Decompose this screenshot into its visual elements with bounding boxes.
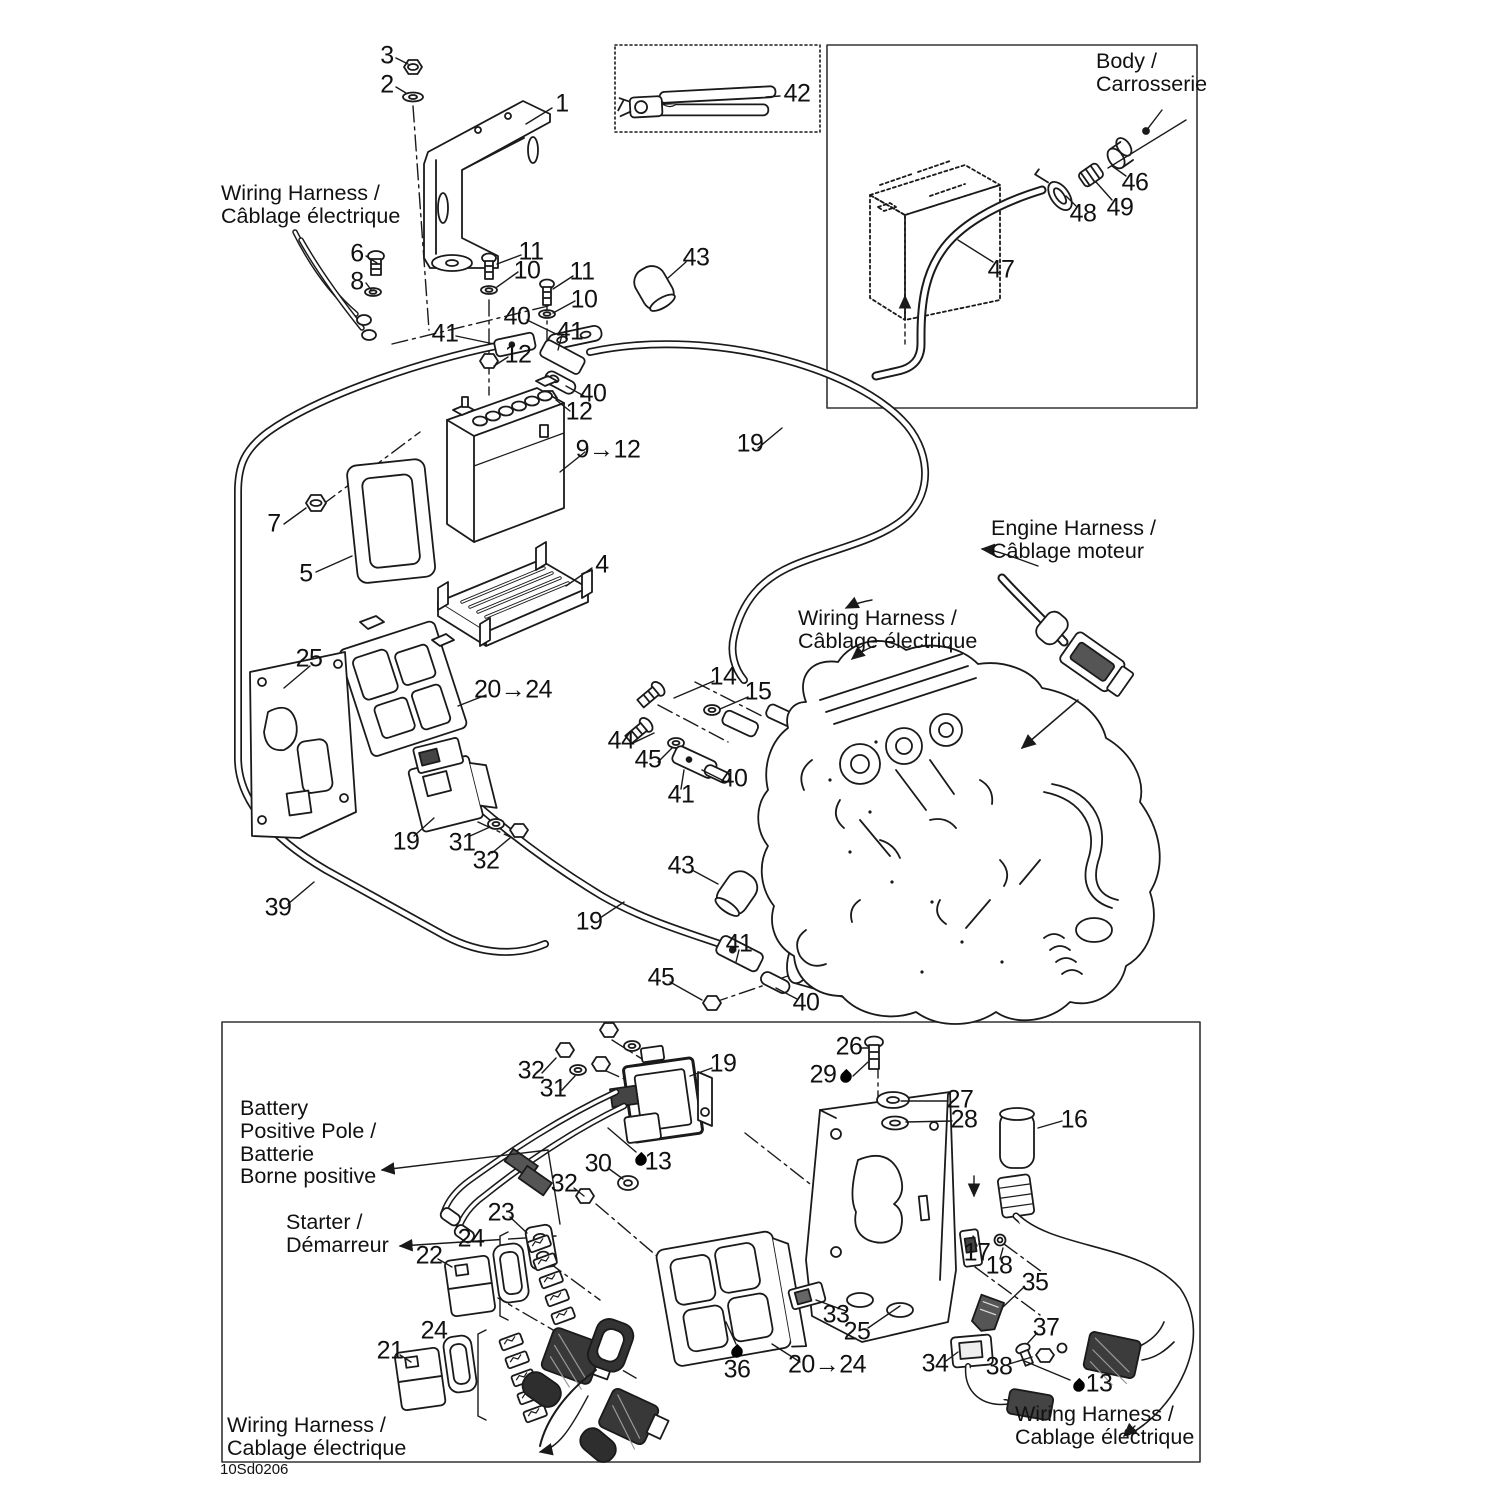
diagram-line-art bbox=[0, 0, 1500, 1500]
solenoid-battery-cables bbox=[439, 1092, 624, 1244]
terminal-boot-43-mid bbox=[711, 866, 762, 920]
relay-21-sleeve-fuses bbox=[394, 1330, 547, 1423]
sensor-34-cable bbox=[951, 1334, 1067, 1420]
battery-ghost bbox=[870, 161, 1000, 320]
bracket-nut-washer bbox=[403, 60, 423, 102]
relay-22-sleeve bbox=[444, 1242, 530, 1317]
electrical-box bbox=[338, 616, 468, 757]
positive-battery-cable bbox=[590, 344, 925, 680]
engine-illustration bbox=[758, 641, 1159, 1024]
clip-35 bbox=[970, 1295, 1004, 1335]
parts-diagram-page: 321426811101110404112414012439→127542520… bbox=[0, 0, 1500, 1500]
mounting-plate-25 bbox=[250, 652, 356, 838]
battery-tray bbox=[438, 542, 592, 646]
washer-30-nut-32 bbox=[576, 1176, 638, 1203]
terminal-boot-43-top bbox=[629, 261, 679, 315]
battery-vent-inset bbox=[870, 110, 1186, 376]
vent-tube bbox=[876, 190, 1042, 376]
screws-11-washers-10 bbox=[481, 254, 555, 319]
battery bbox=[447, 376, 564, 542]
crimping-tool bbox=[617, 86, 780, 123]
vent-fittings bbox=[1033, 135, 1138, 214]
clip-17-nut-18 bbox=[960, 1229, 1006, 1267]
wiring-harness-wires bbox=[295, 232, 376, 340]
hold-down-bracket bbox=[424, 101, 550, 271]
starter-solenoid-mid bbox=[403, 732, 528, 837]
harness-connectors-dark bbox=[518, 1315, 672, 1466]
boot-16-connector bbox=[974, 1108, 1191, 1436]
ecu-box-bottom bbox=[655, 1228, 806, 1369]
battery-pad bbox=[346, 458, 436, 584]
nut-7 bbox=[306, 495, 326, 511]
body-inset-box bbox=[827, 45, 1197, 408]
